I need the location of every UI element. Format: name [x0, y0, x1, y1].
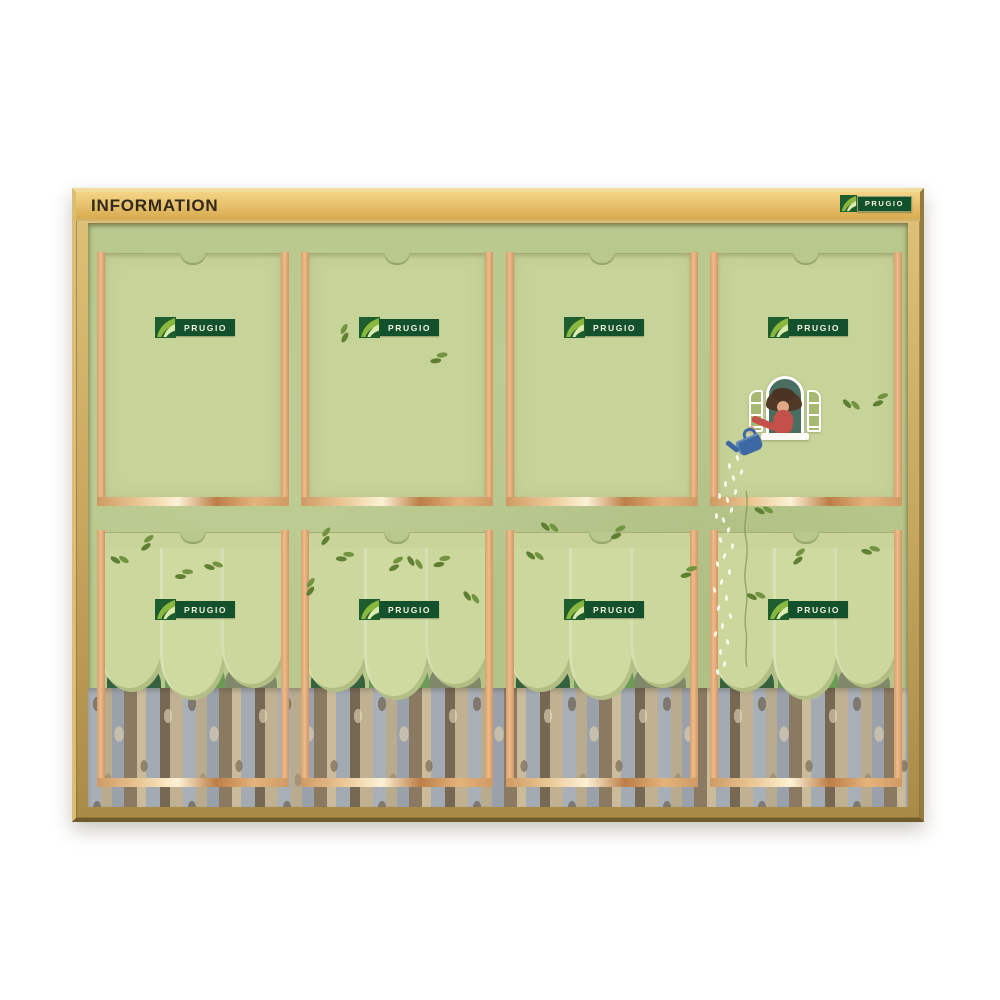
notice-panel: PRUGIO	[97, 530, 289, 787]
water-drop	[721, 623, 724, 629]
brand-logo: PRUGIO	[564, 317, 644, 338]
panel-frame-rail	[506, 530, 514, 787]
brand-logo: PRUGIO	[768, 599, 848, 620]
watering-can-icon	[724, 429, 764, 463]
panel-frame-rail	[281, 252, 289, 506]
thumb-notch	[793, 253, 819, 265]
notice-panel: PRUGIO	[506, 530, 698, 787]
water-drop	[719, 649, 722, 655]
vine-illustration	[736, 491, 754, 669]
panel-frame-rail	[894, 252, 902, 506]
panel-frame-rail	[710, 778, 902, 787]
window-shutter-right	[807, 390, 821, 432]
panel-frame-rail	[506, 778, 698, 787]
board-title: INFORMATION	[76, 196, 218, 216]
panel-paper	[309, 532, 485, 548]
water-drop	[731, 543, 734, 549]
prugio-leaf-icon	[840, 195, 857, 212]
brand-wordmark: PRUGIO	[380, 601, 439, 618]
board-surface: PRUGIO PRUGIO PRUGIO PRUGIO PRUGIO PRUGI…	[88, 223, 908, 805]
prugio-leaf-icon	[564, 317, 585, 338]
water-drop	[729, 507, 733, 514]
water-drop	[728, 569, 731, 575]
brand-logo: PRUGIO	[840, 195, 912, 212]
brand-wordmark: PRUGIO	[585, 601, 644, 618]
panel-frame-rail	[710, 252, 718, 506]
brand-logo: PRUGIO	[155, 599, 235, 620]
panel-frame-rail	[894, 530, 902, 787]
brand-wordmark: PRUGIO	[176, 319, 235, 336]
panel-frame-rail	[97, 252, 105, 506]
brand-wordmark: PRUGIO	[789, 319, 848, 336]
person-hair	[772, 388, 795, 401]
panel-frame-rail	[690, 252, 698, 506]
notice-panel: PRUGIO	[506, 252, 698, 506]
notice-panel: PRUGIO	[301, 252, 493, 506]
panel-frame-rail	[97, 497, 289, 506]
brand-wordmark: PRUGIO	[789, 601, 848, 618]
panel-frame-rail	[97, 530, 105, 787]
thumb-notch	[589, 253, 615, 265]
panel-frame-rail	[485, 252, 493, 506]
panel-frame-rail	[97, 778, 289, 787]
panel-frame-rail	[301, 497, 493, 506]
panel-paper	[309, 253, 485, 497]
water-drop	[728, 463, 731, 469]
brand-logo: PRUGIO	[359, 317, 439, 338]
thumb-notch	[384, 532, 410, 544]
water-drop	[718, 493, 721, 499]
thumb-notch	[180, 532, 206, 544]
prugio-leaf-icon	[564, 599, 585, 620]
watering-can-body	[735, 433, 764, 457]
panel-frame-rail	[710, 530, 718, 787]
brand-wordmark: PRUGIO	[585, 319, 644, 336]
panel-frame-rail	[301, 252, 309, 506]
panel-paper	[514, 532, 690, 548]
panel-paper	[105, 253, 281, 497]
panel-paper	[514, 253, 690, 497]
prugio-leaf-icon	[768, 599, 789, 620]
brand-logo: PRUGIO	[768, 317, 848, 338]
panel-frame-rail	[301, 530, 309, 787]
brand-logo: PRUGIO	[155, 317, 235, 338]
notice-panel: PRUGIO	[97, 252, 289, 506]
water-drop	[715, 513, 718, 519]
prugio-leaf-icon	[768, 317, 789, 338]
water-drop	[724, 481, 727, 487]
brand-wordmark: PRUGIO	[857, 196, 912, 212]
prugio-leaf-icon	[155, 317, 176, 338]
thumb-notch	[384, 253, 410, 265]
thumb-notch	[793, 532, 819, 544]
thumb-notch	[180, 253, 206, 265]
brand-wordmark: PRUGIO	[380, 319, 439, 336]
panel-frame-rail	[506, 252, 514, 506]
panel-frame-rail	[506, 497, 698, 506]
prugio-leaf-icon	[359, 317, 380, 338]
information-board: INFORMATION PRUGIO	[72, 188, 924, 822]
panel-frame-rail	[301, 778, 493, 787]
window-sill	[761, 433, 809, 440]
panel-frame-rail	[485, 530, 493, 787]
panel-paper	[105, 532, 281, 548]
brand-wordmark: PRUGIO	[176, 601, 235, 618]
prugio-leaf-icon	[359, 599, 380, 620]
water-drop	[721, 517, 725, 524]
prugio-leaf-icon	[155, 599, 176, 620]
board-header: INFORMATION PRUGIO	[76, 192, 920, 221]
brand-logo: PRUGIO	[564, 599, 644, 620]
panel-frame-rail	[281, 530, 289, 787]
brand-logo: PRUGIO	[359, 599, 439, 620]
water-drop	[725, 595, 728, 601]
